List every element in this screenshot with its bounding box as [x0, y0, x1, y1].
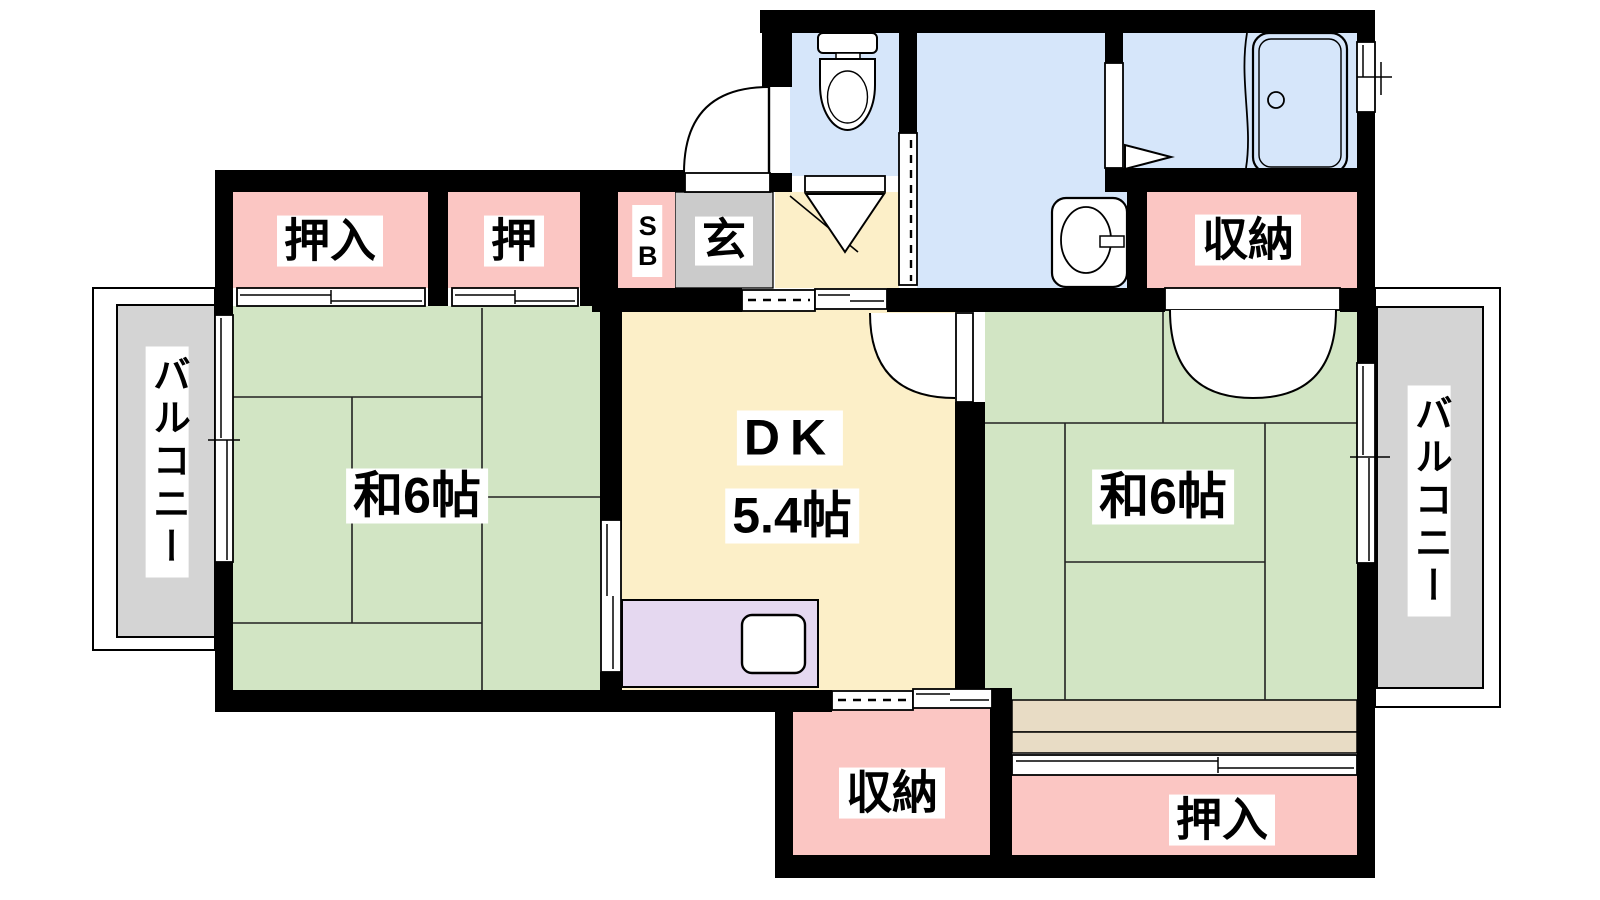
label-closet-n: 押 [484, 216, 544, 267]
entrance-door-arc [684, 87, 769, 173]
bathroom-floor [1123, 33, 1357, 168]
wash-basin-icon [1052, 198, 1127, 287]
storage-s-sliding-door [913, 689, 992, 708]
floor-plan: 押入 押 SB 玄 和6帖 DK 5.4帖 和6帖 収納 収納 押入 バルコニー… [0, 0, 1600, 900]
west-window [215, 315, 233, 562]
label-dk-size: 5.4帖 [725, 489, 859, 544]
kitchen-sink-icon [742, 615, 805, 673]
entrance-sill [685, 173, 770, 192]
east-window [1357, 363, 1375, 563]
label-storage-s: 収納 [839, 768, 945, 819]
fusuma-west-dk [601, 520, 621, 672]
dk-door-leaf [956, 313, 973, 402]
toilet-door [805, 176, 885, 192]
label-genkan: 玄 [695, 217, 753, 266]
double-door-strip [1165, 288, 1340, 310]
label-room-east: 和6帖 [1092, 470, 1234, 525]
label-dk: DK [737, 411, 843, 466]
label-closet-nw: 押入 [277, 216, 383, 267]
bath-door [1105, 63, 1123, 168]
label-shoe-box: SB [632, 205, 662, 277]
closet-se-sliding-door [1012, 755, 1357, 775]
label-room-west: 和6帖 [346, 469, 488, 524]
label-storage-ne: 収納 [1195, 215, 1301, 266]
label-closet-se: 押入 [1169, 795, 1275, 846]
wood-edge-strip [1012, 700, 1357, 753]
hall-sliding-door [815, 289, 887, 309]
toilet-icon [818, 33, 877, 130]
washroom-folding-door [899, 133, 917, 285]
label-balcony-west: バルコニー [146, 347, 189, 578]
kitchen-counter [622, 600, 818, 687]
label-balcony-east: バルコニー [1408, 386, 1451, 617]
